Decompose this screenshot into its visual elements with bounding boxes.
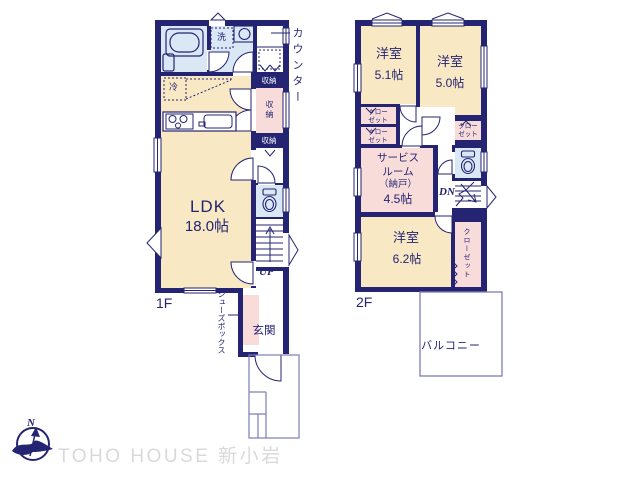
floorplan-drawing xyxy=(0,0,640,480)
bedroom3-size-label: 6.2帖 xyxy=(393,253,422,265)
closet-right-label: クローゼット xyxy=(458,123,478,139)
watermark-text: TOHO HOUSE 新小岩 xyxy=(58,447,283,466)
entrance-label: 玄関 xyxy=(253,326,276,338)
floor2-label: 2F xyxy=(356,295,372,309)
toilet-1f xyxy=(256,185,283,217)
balcony-label: バルコニー xyxy=(421,341,481,352)
bedroom2-room xyxy=(420,26,481,115)
bedroom1-size-label: 5.1帖 xyxy=(375,69,404,81)
bedroom1-name-label: 洋室 xyxy=(376,47,402,60)
ldk-room xyxy=(161,76,251,288)
bedroom3-name-label: 洋室 xyxy=(393,231,419,244)
shoebox-label: シューズボックス xyxy=(217,290,225,354)
entrance-left-wall xyxy=(238,290,243,357)
counter-label: カウンター xyxy=(291,27,302,107)
entrance-right-wall xyxy=(283,288,289,354)
closet-left-1-label: クローゼット xyxy=(368,109,388,125)
bedroom1-room xyxy=(361,26,416,104)
fridge-label: 冷 xyxy=(169,83,178,92)
closet-line1: クロー xyxy=(368,129,388,137)
compass-north-label: N xyxy=(27,418,35,429)
balcony xyxy=(420,292,502,376)
ldk-name-label: LDK xyxy=(190,198,226,215)
kitchen-counter xyxy=(163,112,236,131)
service-room-line2: ルーム xyxy=(377,167,419,178)
corridor-2f xyxy=(438,148,452,212)
closet-bedroom3-label: クローゼット xyxy=(463,228,470,279)
closet-line2: ゼット xyxy=(458,131,478,139)
closet-line1: クロー xyxy=(458,123,478,131)
closet-line2: ゼット xyxy=(368,117,388,125)
bedroom2-name-label: 洋室 xyxy=(437,55,463,68)
closet-line1: クロー xyxy=(368,109,388,117)
storage-mid-label: 収納 xyxy=(265,100,273,120)
bedroom2-size-label: 5.0帖 xyxy=(436,77,465,89)
shoe-box xyxy=(243,295,259,345)
storage-top-label: 収納 xyxy=(262,77,277,85)
hall-connector xyxy=(438,145,452,148)
closet-line2: ゼット xyxy=(368,137,388,145)
stairs-up-label: UP xyxy=(259,267,274,278)
floorplan-canvas: カウンター 洗 冷 収納 収納 収納 LDK 18.0帖 UP 1F シューズボ… xyxy=(0,0,640,480)
storage-bottom-label: 収納 xyxy=(262,137,277,145)
service-room-label: サービス ルーム （納戸） 4.5帖 xyxy=(377,153,419,208)
service-room-line3: （納戸） xyxy=(377,180,419,190)
closet-left-2-label: クローゼット xyxy=(368,129,388,145)
ldk-size-label: 18.0帖 xyxy=(185,219,229,234)
service-room-size: 4.5帖 xyxy=(377,193,419,205)
compass-icon xyxy=(12,427,53,460)
floor1-label: 1F xyxy=(156,296,172,310)
laundry-label: 洗 xyxy=(217,33,226,42)
stairs-down-label: DN xyxy=(439,187,455,198)
service-room-line1: サービス xyxy=(377,153,419,164)
